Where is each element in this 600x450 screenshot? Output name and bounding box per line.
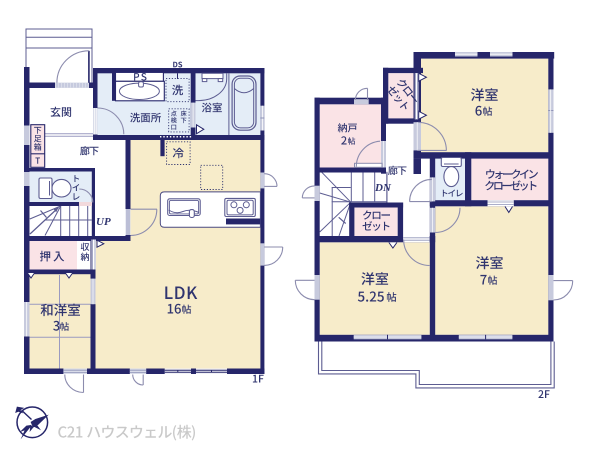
svg-text:UP: UP (96, 216, 111, 228)
svg-text:DN: DN (374, 182, 392, 194)
